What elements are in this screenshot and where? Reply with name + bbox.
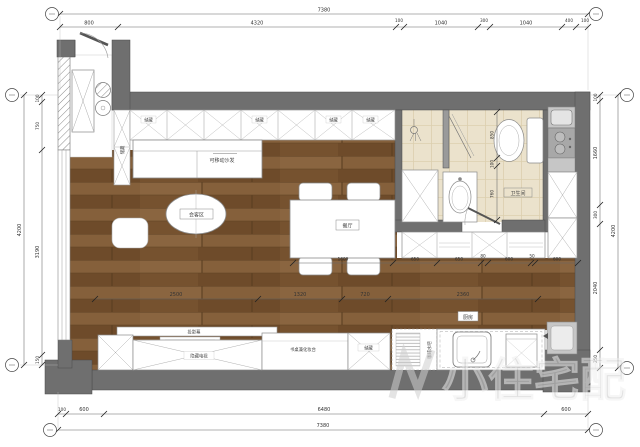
storage-label: 储藏	[119, 145, 126, 154]
dim: 100	[35, 94, 40, 102]
left-wall-stub	[58, 340, 72, 368]
dim: 650	[411, 257, 419, 262]
faucet-icon	[458, 177, 462, 181]
bathroom-label: 卫生间	[510, 190, 525, 197]
dim: 720	[360, 292, 370, 298]
window-band	[58, 150, 70, 340]
floor-mat	[112, 218, 148, 248]
dim: 300	[593, 211, 598, 219]
corner-unit-panel	[551, 326, 573, 350]
dim: 100	[58, 407, 66, 412]
dining-chair	[347, 257, 380, 275]
counter-segment	[548, 158, 575, 172]
dining-chair	[299, 183, 332, 201]
kitchen-floor-label: 厨房	[458, 312, 478, 322]
dim: 1600	[338, 257, 349, 262]
dining-chair	[347, 183, 380, 201]
dim: 1040	[435, 21, 448, 27]
dim: 2360	[457, 292, 470, 298]
hidden-tv-label: 隐藏电视	[190, 353, 208, 360]
toilet-tank	[527, 118, 543, 163]
storage-label: 储藏	[366, 117, 375, 124]
dim-top-total: 7380	[318, 8, 331, 14]
wood-floor-strip	[262, 138, 397, 158]
dim: 600	[553, 257, 561, 262]
door-side-wall-block	[57, 40, 75, 57]
dim: 4320	[251, 21, 264, 27]
kitchen-label: 厨房	[463, 314, 473, 321]
dryer-icon	[96, 101, 111, 116]
dim: 1320	[294, 292, 307, 298]
burner-icon	[555, 144, 565, 154]
dim: 850	[490, 131, 495, 139]
storage-cabinet-row	[130, 110, 395, 140]
door-leaf	[80, 33, 108, 45]
hall-cabinet-row	[402, 232, 545, 258]
door-swing-arc-icon	[80, 33, 108, 58]
watermark-text: 小住宅配	[442, 353, 626, 407]
dim: 80	[480, 254, 486, 259]
shower-partition-wall	[443, 110, 449, 168]
dim: 100	[395, 18, 403, 23]
dim: 50	[529, 254, 535, 259]
dim: 750	[35, 122, 40, 130]
dim: 600	[561, 407, 571, 413]
dim-bottom-total: 7380	[317, 423, 330, 429]
meeting-area-label: 会客区	[189, 212, 204, 219]
dim: 600	[505, 257, 513, 262]
dim: 6480	[318, 407, 331, 413]
storage-label: 储藏	[329, 117, 338, 124]
floor-plan-canvas: 储藏 储藏 储藏 储藏 储藏 可移动沙发 会客区 餐厅	[0, 0, 640, 447]
bathroom-bottom-wall-right	[502, 220, 545, 232]
dim: 100	[490, 160, 495, 168]
toilet	[494, 118, 543, 163]
dim: 760	[490, 190, 495, 198]
dim: 1040	[520, 21, 533, 27]
entry-wall	[112, 40, 130, 110]
dim: 150	[35, 356, 40, 364]
dim: 600	[79, 407, 89, 413]
top-wall	[112, 92, 590, 110]
dim: 100	[581, 18, 589, 23]
dim: 3190	[35, 246, 41, 259]
dim: 650	[455, 257, 463, 262]
dim-left-total: 4200	[17, 224, 23, 237]
storage-label: 储藏	[364, 345, 373, 352]
sofa	[133, 140, 262, 178]
kitchen-top-sink	[551, 110, 572, 125]
dim: 800	[84, 21, 94, 27]
dim: 300	[480, 18, 488, 23]
burner-icon	[555, 132, 565, 142]
stove-knob-icon	[569, 138, 571, 140]
kitchen-corridor-wood-floor	[397, 258, 577, 330]
bathroom-right-wall	[543, 110, 548, 232]
hall-cabinets	[402, 232, 545, 258]
storage-label: 储藏	[144, 117, 153, 124]
sofa-label: 可移动沙发	[209, 157, 234, 164]
dim: 1660	[593, 147, 599, 160]
dim: 2500	[170, 292, 183, 298]
dim: 100	[593, 93, 598, 101]
toilet-bowl	[494, 120, 524, 162]
entry-door	[75, 33, 108, 58]
floor-plan-drawing: 储藏 储藏 储藏 储藏 储藏 可移动沙发 会客区 餐厅	[0, 0, 640, 447]
stove-knob-icon	[569, 146, 571, 148]
washer-icon	[96, 83, 111, 98]
dim-right-total: 4200	[611, 225, 617, 238]
dining-label: 餐厅	[342, 223, 352, 230]
storage-label: 储藏	[255, 117, 264, 124]
left-exterior-wall	[58, 57, 70, 340]
projector-screen-label: 投影幕	[188, 329, 202, 336]
kitchen-column	[548, 107, 577, 258]
dining-chair	[299, 257, 332, 275]
desk-vanity-label: 书桌兼化妆台	[290, 346, 316, 353]
dim: 400	[565, 18, 573, 23]
bathroom-left-wall	[395, 110, 402, 222]
dim: 2040	[593, 282, 599, 295]
